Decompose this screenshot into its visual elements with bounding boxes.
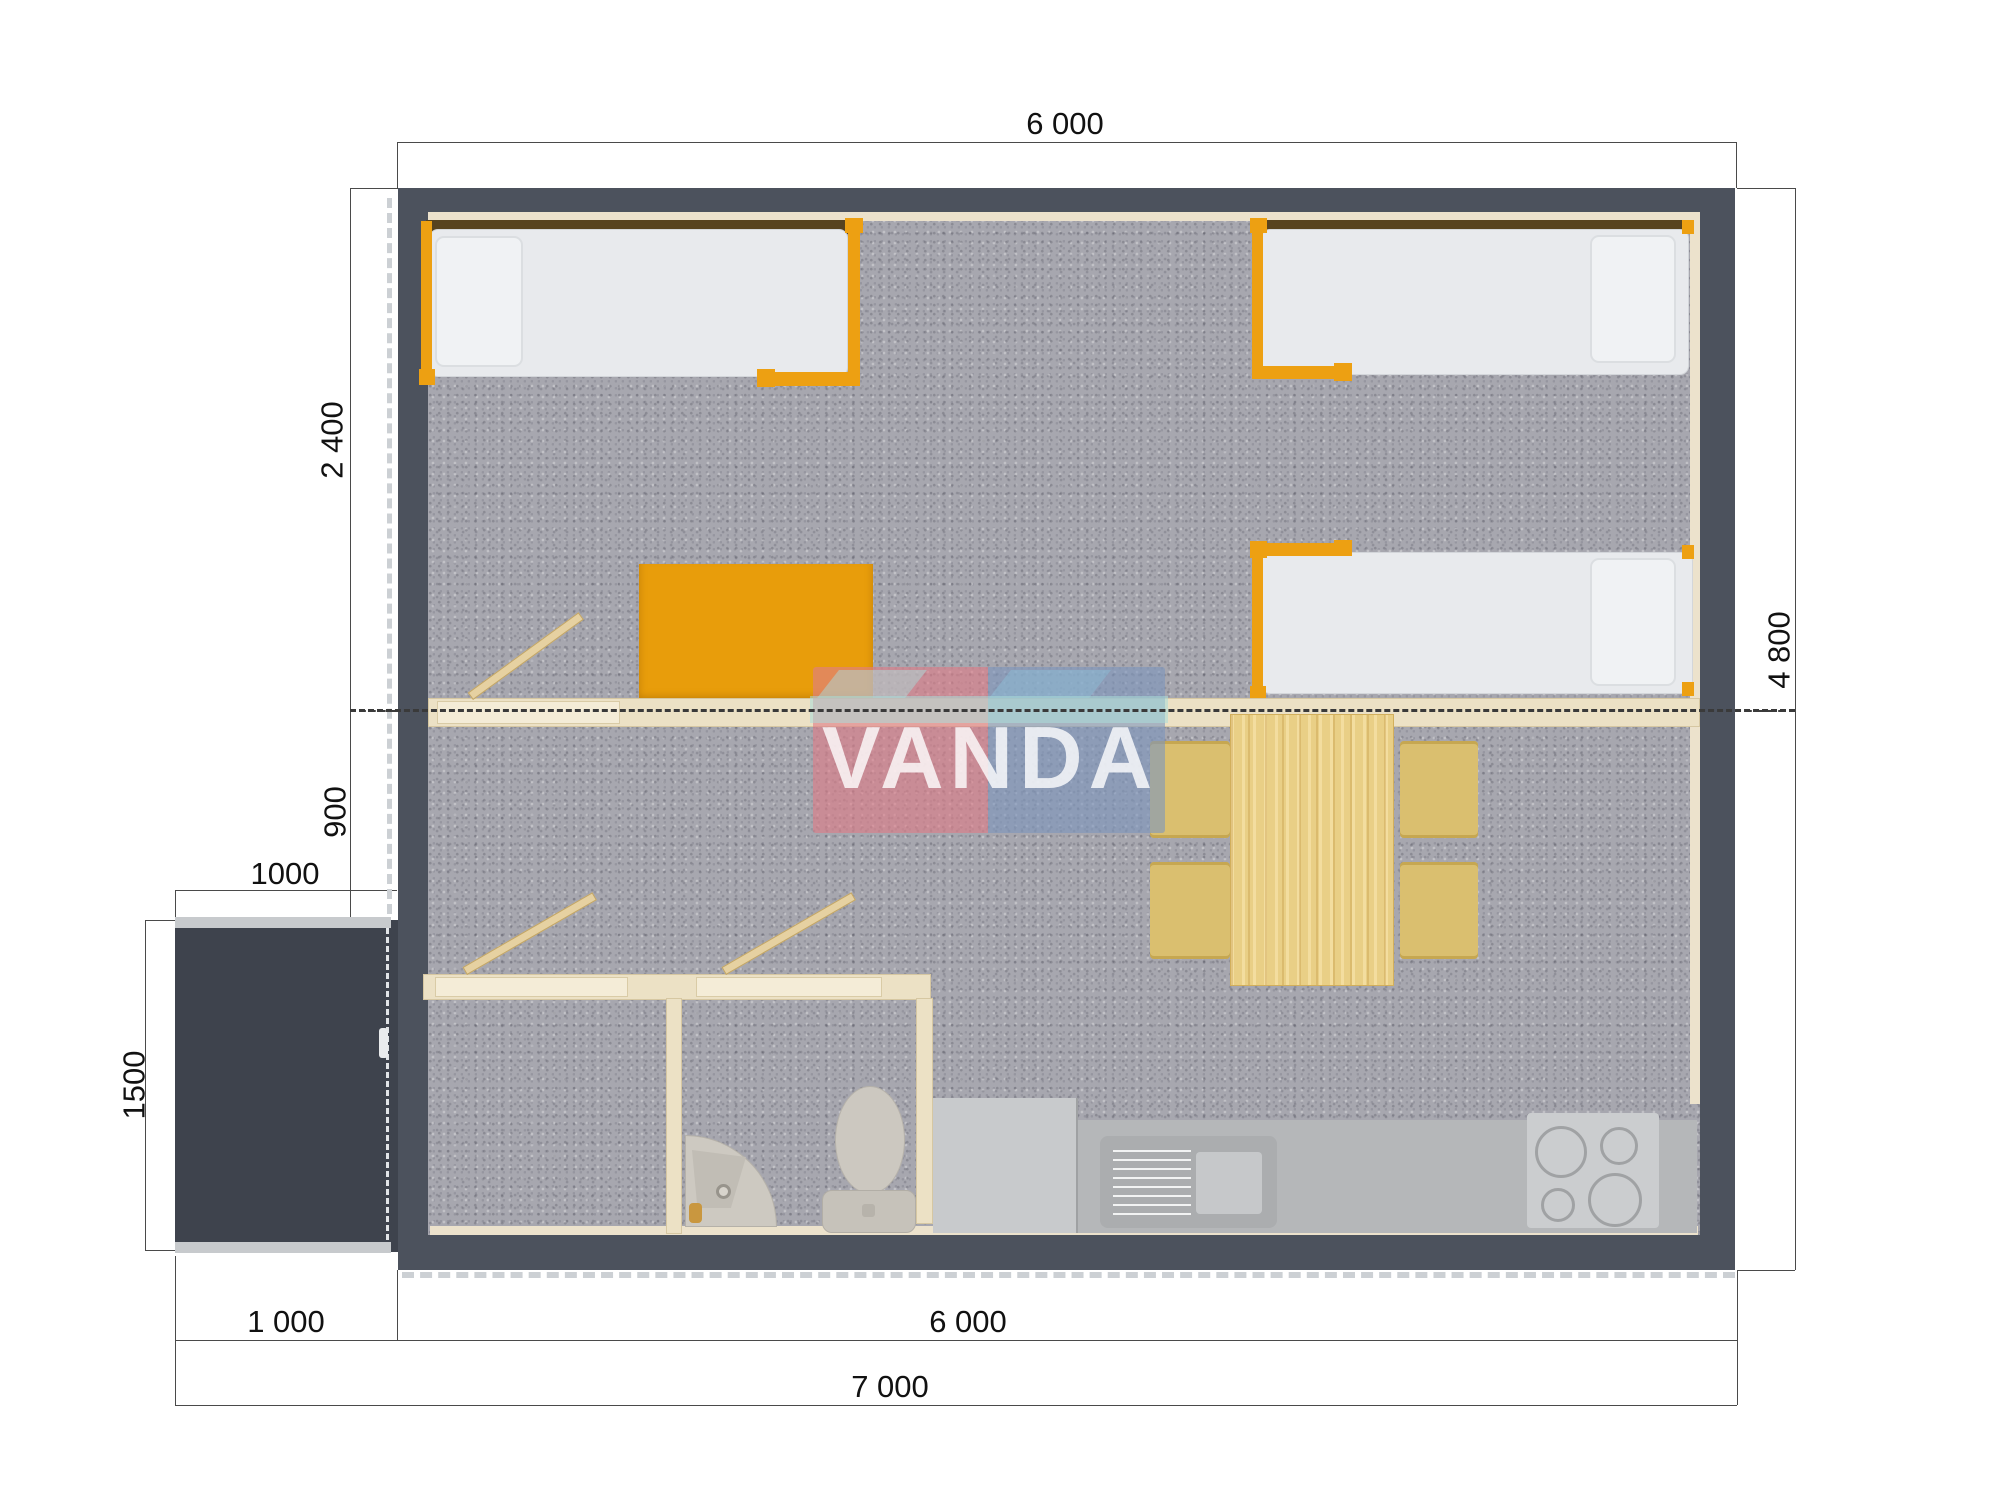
dim-ext [397, 142, 398, 188]
dim-bedroom-depth: 2 400 [315, 383, 347, 498]
bed-frame-rail [1252, 545, 1263, 695]
dim-total-width: 7 000 [830, 1369, 950, 1405]
entrance-door [386, 928, 389, 1240]
bed-frame-corner [1250, 541, 1267, 558]
bathroom-wall-vertical-right [916, 998, 933, 1224]
drainboard-icon [1113, 1150, 1191, 1216]
bathroom-door-pocket-1 [435, 977, 628, 997]
dim-ext [397, 1270, 398, 1340]
porch-step-top [175, 917, 391, 928]
toilet-lid [835, 1086, 905, 1194]
dim-ext [145, 920, 175, 921]
dim-top-width: 6 000 [1005, 106, 1125, 142]
dim-line-total-depth [1795, 188, 1796, 1270]
dim-main-width-bottom: 6 000 [908, 1304, 1028, 1340]
bed-frame-corner [845, 218, 863, 233]
door-handle [379, 1028, 388, 1058]
burner-icon [1600, 1127, 1638, 1165]
bed-frame-rail [848, 222, 860, 385]
partition-centerline-dashed [350, 709, 1795, 712]
bed-pillow [1590, 235, 1676, 363]
partition-door-pocket [437, 701, 620, 724]
porch [175, 920, 398, 1252]
bed-frame-corner [1682, 220, 1694, 234]
porch-step-bottom [175, 1242, 391, 1253]
dim-line-bottom-2 [175, 1405, 1737, 1406]
dim-ext [145, 1250, 175, 1251]
bed-frame-rail [762, 372, 860, 386]
bed-pillow [1590, 558, 1676, 686]
bathroom-door-pocket-2 [696, 977, 882, 997]
dim-ext [1736, 142, 1737, 188]
bed-frame-rail [1252, 221, 1263, 378]
bed-frame-corner [1250, 218, 1267, 233]
dining-table [1230, 714, 1394, 986]
dim-porch-width-top: 1000 [225, 856, 345, 892]
watermark-text: VANDA [812, 702, 1168, 814]
dim-ext [175, 890, 176, 920]
soap-bottle-icon [689, 1203, 702, 1223]
chair-4 [1400, 862, 1478, 959]
bed-frame-corner [1334, 540, 1352, 556]
dim-porch-depth: 1500 [117, 1028, 149, 1143]
dim-ext [175, 1256, 176, 1405]
bed-frame-rail [421, 221, 432, 384]
dim-ext [1737, 1270, 1738, 1405]
chair-3 [1400, 741, 1478, 838]
bed-frame-corner [419, 369, 435, 385]
dim-ext [1737, 1270, 1795, 1271]
bed-frame-corner [1682, 545, 1694, 559]
dim-line-bedroom-depth [350, 188, 351, 711]
kitchen-sink-basin [1196, 1152, 1262, 1214]
dim-ext [1737, 188, 1795, 189]
siding-dashes-bottom [402, 1272, 1735, 1278]
burner-icon [1535, 1126, 1587, 1178]
dim-line-bottom-1 [175, 1340, 1737, 1341]
dim-total-depth: 4 800 [1762, 593, 1794, 708]
bathroom-wall-vertical-left [666, 998, 682, 1234]
dim-ext [350, 188, 398, 189]
bed-pillow [435, 236, 523, 367]
siding-dashes-left [387, 198, 392, 914]
dim-entry-depth: 900 [318, 755, 350, 870]
floor-plan: 6 000 2 400 900 1000 1500 4 800 1 000 6 … [0, 0, 2000, 1502]
bed-frame-corner [1334, 363, 1352, 381]
burner-icon [1588, 1173, 1642, 1227]
bed-frame-corner [1682, 682, 1694, 696]
dim-line-top [397, 142, 1737, 143]
faucet-icon [716, 1184, 731, 1199]
burner-icon [1541, 1188, 1575, 1222]
bed-frame-corner [757, 369, 775, 387]
dim-porch-width-bottom: 1 000 [226, 1304, 346, 1340]
kitchen-cabinet-left [933, 1098, 1078, 1233]
toilet-button [862, 1204, 875, 1217]
chair-2 [1150, 862, 1230, 959]
